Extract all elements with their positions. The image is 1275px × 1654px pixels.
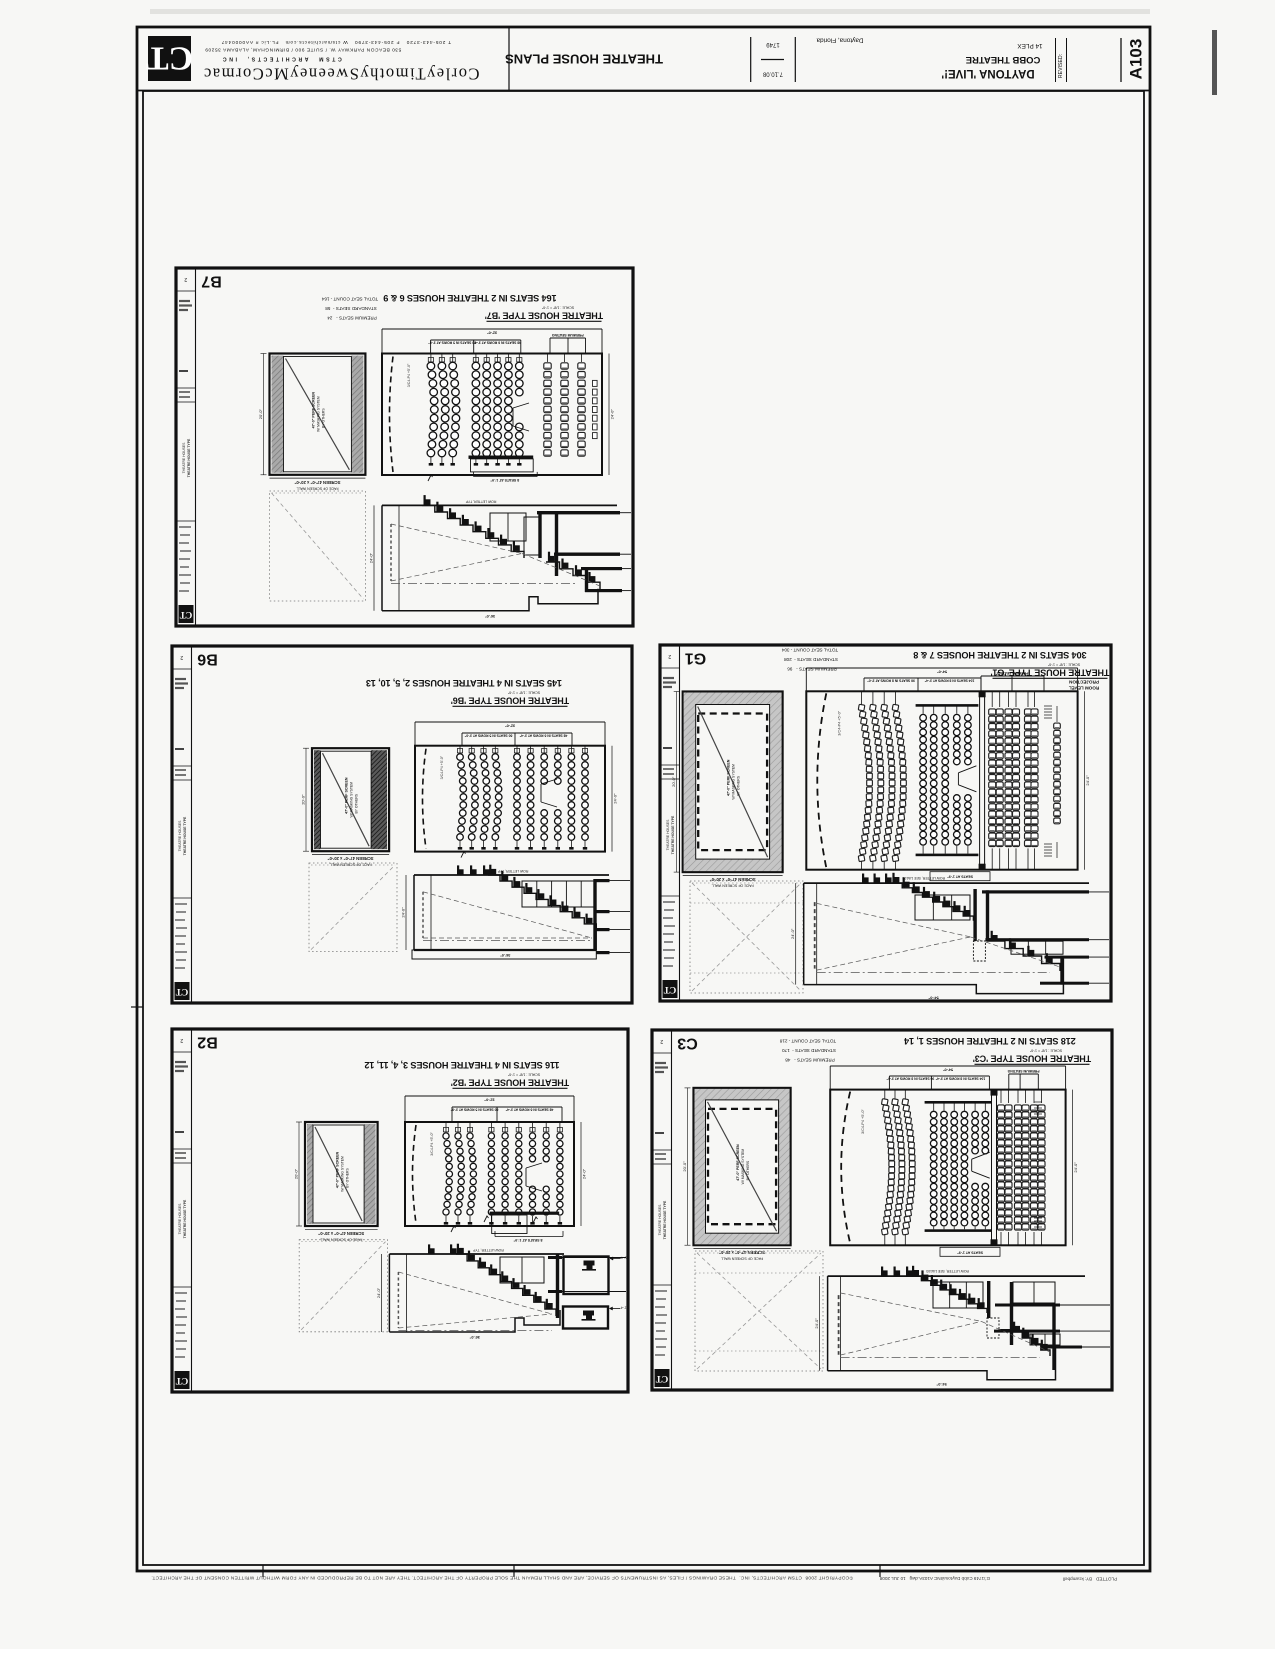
svg-text:BY OTHERS: BY OTHERS [321, 408, 325, 428]
svg-text:24'-0": 24'-0" [790, 928, 795, 939]
svg-text:SEATS AT 1'-9": SEATS AT 1'-9" [957, 1250, 983, 1254]
svg-text:PROJECTION: PROJECTION [1068, 680, 1099, 685]
svg-text:B2: B2 [197, 1034, 218, 1051]
svg-text:REVISED:: REVISED: [1058, 54, 1064, 78]
svg-text:CT: CT [180, 610, 193, 620]
svg-text:47'-0" PERF SCREEN: 47'-0" PERF SCREEN [345, 777, 349, 814]
svg-text:20'-0": 20'-0" [671, 776, 676, 787]
svg-text:FACE OF SCREEN WALL: FACE OF SCREEN WALL [296, 486, 338, 490]
svg-text:ROOM LEVEL: ROOM LEVEL [1069, 686, 1100, 691]
svg-text:B7: B7 [201, 273, 222, 290]
svg-text:THEATRE HOUSE TYPE 'C3': THEATRE HOUSE TYPE 'C3' [973, 1054, 1091, 1064]
svg-text:ROW LETTER, TYP: ROW LETTER, TYP [472, 1248, 503, 1252]
svg-text:PLOTTED BY: kcampbell: PLOTTED BY: kcampbell [1063, 1577, 1117, 1582]
svg-text:THEATRE HOUSE TYPE 'B2': THEATRE HOUSE TYPE 'B2' [451, 1078, 569, 1088]
svg-text:32'-0": 32'-0" [487, 331, 498, 335]
svg-text:G1: G1 [685, 650, 706, 667]
svg-text:SCALE : 1/8" = 1'-0": SCALE : 1/8" = 1'-0" [1029, 1049, 1062, 1053]
svg-text:TOTAL SEAT COUNT - 164: TOTAL SEAT COUNT - 164 [321, 297, 378, 302]
svg-text:32'-0": 32'-0" [505, 724, 516, 728]
svg-text:218 SEATS IN 2 THEATRE HOUSES: 218 SEATS IN 2 THEATRE HOUSES 1, 14 [903, 1036, 1076, 1046]
svg-text:SCREEN 47'-0" x 20'-0": SCREEN 47'-0" x 20'-0" [294, 480, 340, 485]
svg-text:THEATRE HOUSE PLANS: THEATRE HOUSE PLANS [505, 52, 663, 67]
svg-text:ROW LETTER, SEE 1/A103: ROW LETTER, SEE 1/A103 [926, 1269, 969, 1273]
svg-text:24'-0": 24'-0" [401, 907, 406, 918]
svg-text:BY OTHERS: BY OTHERS [355, 793, 359, 813]
svg-text:THEATRE HOUSES: THEATRE HOUSES [666, 819, 670, 851]
svg-text:2: 2 [184, 276, 187, 282]
svg-text:SCALE : 1/8" = 1'-0": SCALE : 1/8" = 1'-0" [507, 691, 540, 695]
svg-text:24'-0": 24'-0" [1073, 1162, 1078, 1173]
svg-text:TOTAL SEAT COUNT - 304: TOTAL SEAT COUNT - 304 [781, 648, 838, 653]
svg-text:60 SEATS IN 5 ROWS AT 3'-0": 60 SEATS IN 5 ROWS AT 3'-0" [464, 734, 512, 738]
svg-text:60 SEATS IN 5 ROWS AT 3'-0": 60 SEATS IN 5 ROWS AT 3'-0" [428, 341, 476, 345]
svg-text:24'-0": 24'-0" [814, 1318, 819, 1329]
svg-text:BY OTHERS: BY OTHERS [345, 1168, 349, 1188]
svg-text:PREMIUM SEATING: PREMIUM SEATING [1007, 1069, 1039, 1073]
svg-text:54'-0": 54'-0" [943, 1068, 954, 1072]
svg-text:STANDARD SEATS - 58: STANDARD SEATS - 58 [325, 306, 377, 311]
svg-text:Daytona, Florida: Daytona, Florida [816, 37, 863, 44]
svg-text:36'-0": 36'-0" [469, 1335, 480, 1339]
svg-text:8 SEATS AT 1'-9": 8 SEATS AT 1'-9" [490, 478, 519, 482]
svg-text:48 SEATS IN 6 ROWS AT 3'-4": 48 SEATS IN 6 ROWS AT 3'-4" [473, 341, 521, 345]
svg-text:SCALE : 1/8" = 1'-0": SCALE : 1/8" = 1'-0" [541, 306, 574, 310]
svg-text:W/ MASKING SYSTEM: W/ MASKING SYSTEM [350, 782, 354, 818]
svg-text:24'-0": 24'-0" [369, 552, 374, 563]
svg-text:24'-0": 24'-0" [610, 409, 615, 420]
svg-text:ROW LETTER, TYP: ROW LETTER, TYP [497, 869, 528, 873]
svg-text:2: 2 [180, 1037, 183, 1043]
svg-text:24'-0": 24'-0" [1085, 775, 1090, 786]
svg-text:48 SEATS IN 6 ROWS AT 3'-4": 48 SEATS IN 6 ROWS AT 3'-4" [519, 734, 567, 738]
svg-text:304 SEATS IN 2 THEATRE HOUSES: 304 SEATS IN 2 THEATRE HOUSES 7 & 8 [913, 650, 1086, 660]
svg-text:3/C4-P4 +5'-0": 3/C4-P4 +5'-0" [440, 755, 444, 779]
svg-text:SCREEN 47'-0" x 20'-0": SCREEN 47'-0" x 20'-0" [318, 1231, 364, 1236]
svg-text:THEATRE HOUSES: THEATRE HOUSES [182, 442, 186, 474]
svg-text:PREMIUM SEATS - 24: PREMIUM SEATS - 24 [327, 316, 377, 321]
svg-text:2: 2 [668, 653, 671, 659]
svg-text:BY OTHERS: BY OTHERS [737, 775, 741, 795]
svg-text:24'-0": 24'-0" [376, 1287, 381, 1298]
svg-text:FACE OF SCREEN WALL: FACE OF SCREEN WALL [712, 884, 754, 888]
svg-text:THEATRE HOUSE TYPE 'B7': THEATRE HOUSE TYPE 'B7' [485, 311, 603, 321]
svg-text:21'-4": 21'-4" [619, 1306, 628, 1310]
svg-text:20'-0": 20'-0" [301, 794, 306, 805]
svg-text:36'-0": 36'-0" [485, 614, 496, 618]
svg-text:116 SEATS IN 4 THEATRE HOUSES: 116 SEATS IN 4 THEATRE HOUSES 3, 4, 11, … [364, 1060, 559, 1070]
svg-text:W/ MASKING SYSTEM: W/ MASKING SYSTEM [741, 1149, 745, 1185]
svg-text:145 SEATS IN 4 THEATRE HOUSES: 145 SEATS IN 4 THEATRE HOUSES 2, 5, 10, … [366, 678, 562, 688]
svg-text:W/ MASKING SYSTEM: W/ MASKING SYSTEM [732, 764, 736, 800]
svg-text:SCALE : 1/8" = 1'-0": SCALE : 1/8" = 1'-0" [507, 1073, 540, 1077]
svg-text:47'-0" PERF SCREEN: 47'-0" PERF SCREEN [727, 759, 731, 796]
svg-text:A103: A103 [1127, 39, 1146, 80]
svg-text:104 SEATS IN 8 ROWS AT 3'-4": 104 SEATS IN 8 ROWS AT 3'-4" [924, 679, 974, 683]
svg-text:CTSM ARCHITECTS, INC: CTSM ARCHITECTS, INC [220, 56, 341, 62]
svg-text:54'-0": 54'-0" [936, 1382, 947, 1386]
svg-text:96 SEATS IN 8 ROWS AT 3'-0": 96 SEATS IN 8 ROWS AT 3'-0" [886, 1077, 934, 1081]
svg-text:24'-0": 24'-0" [582, 1168, 587, 1179]
svg-text:36'-0": 36'-0" [500, 953, 511, 957]
svg-text:W/ MASKING SYSTEM: W/ MASKING SYSTEM [316, 396, 320, 432]
svg-text:STANDARD SEATS - 170: STANDARD SEATS - 170 [782, 1048, 836, 1053]
svg-text:3/C4-P4 +5'-0": 3/C4-P4 +5'-0" [861, 1109, 865, 1134]
svg-text:20'-0": 20'-0" [258, 408, 263, 419]
svg-text:48 SEATS IN 6 ROWS AT 3'-4": 48 SEATS IN 6 ROWS AT 3'-4" [505, 1108, 553, 1112]
svg-text:3/C4-P4 +5'-0": 3/C4-P4 +5'-0" [407, 363, 411, 387]
svg-text:2: 2 [660, 1038, 663, 1044]
svg-text:21'-4": 21'-4" [619, 1256, 628, 1260]
svg-text:THEATRE HOUSE TYPE 'B6': THEATRE HOUSE TYPE 'B6' [451, 696, 569, 706]
svg-text:32'-0": 32'-0" [484, 1098, 495, 1102]
svg-text:CT: CT [656, 1374, 669, 1384]
svg-text:20'-0": 20'-0" [682, 1161, 687, 1172]
svg-text:3/C4-P4 +5'-0": 3/C4-P4 +5'-0" [430, 1132, 434, 1156]
svg-text:54'-0": 54'-0" [937, 670, 948, 674]
svg-text:PREMIUM SEATS - 96: PREMIUM SEATS - 96 [787, 667, 837, 672]
svg-text:G:\1749 Cobb Daytona\INC A103A: G:\1749 Cobb Daytona\INC A103A.dwg 10 JU… [879, 1576, 990, 1581]
svg-text:PREMIUM SEATING: PREMIUM SEATING [996, 671, 1028, 675]
svg-text:20'-0": 20'-0" [294, 1168, 299, 1179]
svg-text:STANDARD SEATS - 208: STANDARD SEATS - 208 [784, 657, 838, 662]
svg-text:B6: B6 [197, 651, 218, 668]
svg-text:FACE OF SCREEN WALL: FACE OF SCREEN WALL [721, 1257, 763, 1261]
svg-text:530 BEACON PARKWAY W. / SUITE: 530 BEACON PARKWAY W. / SUITE 900 / BIRM… [205, 46, 402, 52]
svg-text:THEATRE HOUSE TYPE: THEATRE HOUSE TYPE [671, 815, 675, 854]
svg-text:SCREEN 47'-0" x 20'-0": SCREEN 47'-0" x 20'-0" [710, 877, 756, 882]
svg-text:60 SEATS IN 5 ROWS AT 3'-0": 60 SEATS IN 5 ROWS AT 3'-0" [450, 1108, 498, 1112]
svg-text:47'-0" PERF SCREEN: 47'-0" PERF SCREEN [335, 1151, 339, 1188]
svg-text:CT: CT [664, 985, 677, 995]
svg-text:7.10.08: 7.10.08 [762, 71, 783, 77]
svg-text:2: 2 [180, 654, 183, 660]
svg-text:47'-0" PERF SCREEN: 47'-0" PERF SCREEN [736, 1144, 740, 1181]
svg-text:W/ MASKING SYSTEM: W/ MASKING SYSTEM [340, 1156, 344, 1192]
svg-text:ROW LETTER, TYP: ROW LETTER, TYP [465, 499, 496, 503]
svg-text:THEATRE HOUSES: THEATRE HOUSES [178, 1203, 182, 1235]
svg-text:SEATS AT 1'-9": SEATS AT 1'-9" [947, 875, 973, 879]
svg-text:T 205-443-3720 F 205-443-379: T 205-443-3720 F 205-443-3790 W ctsmarch… [221, 39, 451, 45]
svg-text:PREMIUM SEATS - 48: PREMIUM SEATS - 48 [785, 1058, 835, 1063]
svg-text:SCREEN 47'-0" x 20'-0": SCREEN 47'-0" x 20'-0" [328, 856, 374, 861]
svg-text:104 SEATS IN 8 ROWS AT 3'-4": 104 SEATS IN 8 ROWS AT 3'-4" [935, 1077, 985, 1081]
svg-text:CorleyTimothySweeneyMcCormac: CorleyTimothySweeneyMcCormac [203, 65, 480, 84]
svg-text:CT: CT [176, 1376, 189, 1386]
svg-text:THEATRE HOUSE TYPE: THEATRE HOUSE TYPE [663, 1200, 667, 1239]
svg-text:14 PLEX: 14 PLEX [1017, 42, 1043, 49]
svg-text:THEATRE HOUSES: THEATRE HOUSES [658, 1204, 662, 1236]
svg-text:CT: CT [176, 987, 189, 997]
svg-text:96 SEATS IN 8 ROWS AT 3'-0": 96 SEATS IN 8 ROWS AT 3'-0" [867, 679, 915, 683]
svg-text:C3: C3 [677, 1035, 698, 1052]
svg-text:THEATRE HOUSE TYPE: THEATRE HOUSE TYPE [183, 1199, 187, 1238]
svg-text:47'-0" PERF SCREEN: 47'-0" PERF SCREEN [311, 392, 315, 429]
svg-text:THEATRE HOUSE TYPE: THEATRE HOUSE TYPE [187, 438, 191, 477]
svg-text:1749: 1749 [766, 41, 780, 47]
svg-text:TOTAL SEAT COUNT - 218: TOTAL SEAT COUNT - 218 [779, 1039, 836, 1044]
svg-text:164 SEATS IN 2 THEATRE HOUSES: 164 SEATS IN 2 THEATRE HOUSES 6 & 9 [383, 293, 556, 303]
svg-text:COBB THEATRE: COBB THEATRE [966, 54, 1041, 65]
svg-text:PREMIUM SEATING: PREMIUM SEATING [552, 333, 584, 337]
svg-text:DAYTONA 'LIVE!': DAYTONA 'LIVE!' [941, 67, 1034, 79]
svg-text:CT: CT [146, 40, 194, 77]
svg-text:BY OTHERS: BY OTHERS [746, 1160, 750, 1180]
svg-text:3/C4-P4 +5'-0": 3/C4-P4 +5'-0" [837, 710, 841, 735]
svg-text:©COPYRIGHT 2008 CTSM ARCHITEC: ©COPYRIGHT 2008 CTSM ARCHITECTS, INC. TH… [151, 1576, 853, 1582]
svg-text:54'-0": 54'-0" [928, 996, 939, 1000]
svg-text:8 SEATS AT 1'-9": 8 SEATS AT 1'-9" [513, 1238, 542, 1242]
svg-text:24'-0": 24'-0" [613, 793, 618, 804]
svg-text:THEATRE HOUSES: THEATRE HOUSES [178, 820, 182, 852]
svg-text:SCALE : 1/8" = 1'-0": SCALE : 1/8" = 1'-0" [1047, 663, 1080, 667]
svg-text:ROW LETTER, SEE 1/A103: ROW LETTER, SEE 1/A103 [902, 876, 945, 880]
svg-text:THEATRE HOUSE TYPE: THEATRE HOUSE TYPE [183, 816, 187, 855]
